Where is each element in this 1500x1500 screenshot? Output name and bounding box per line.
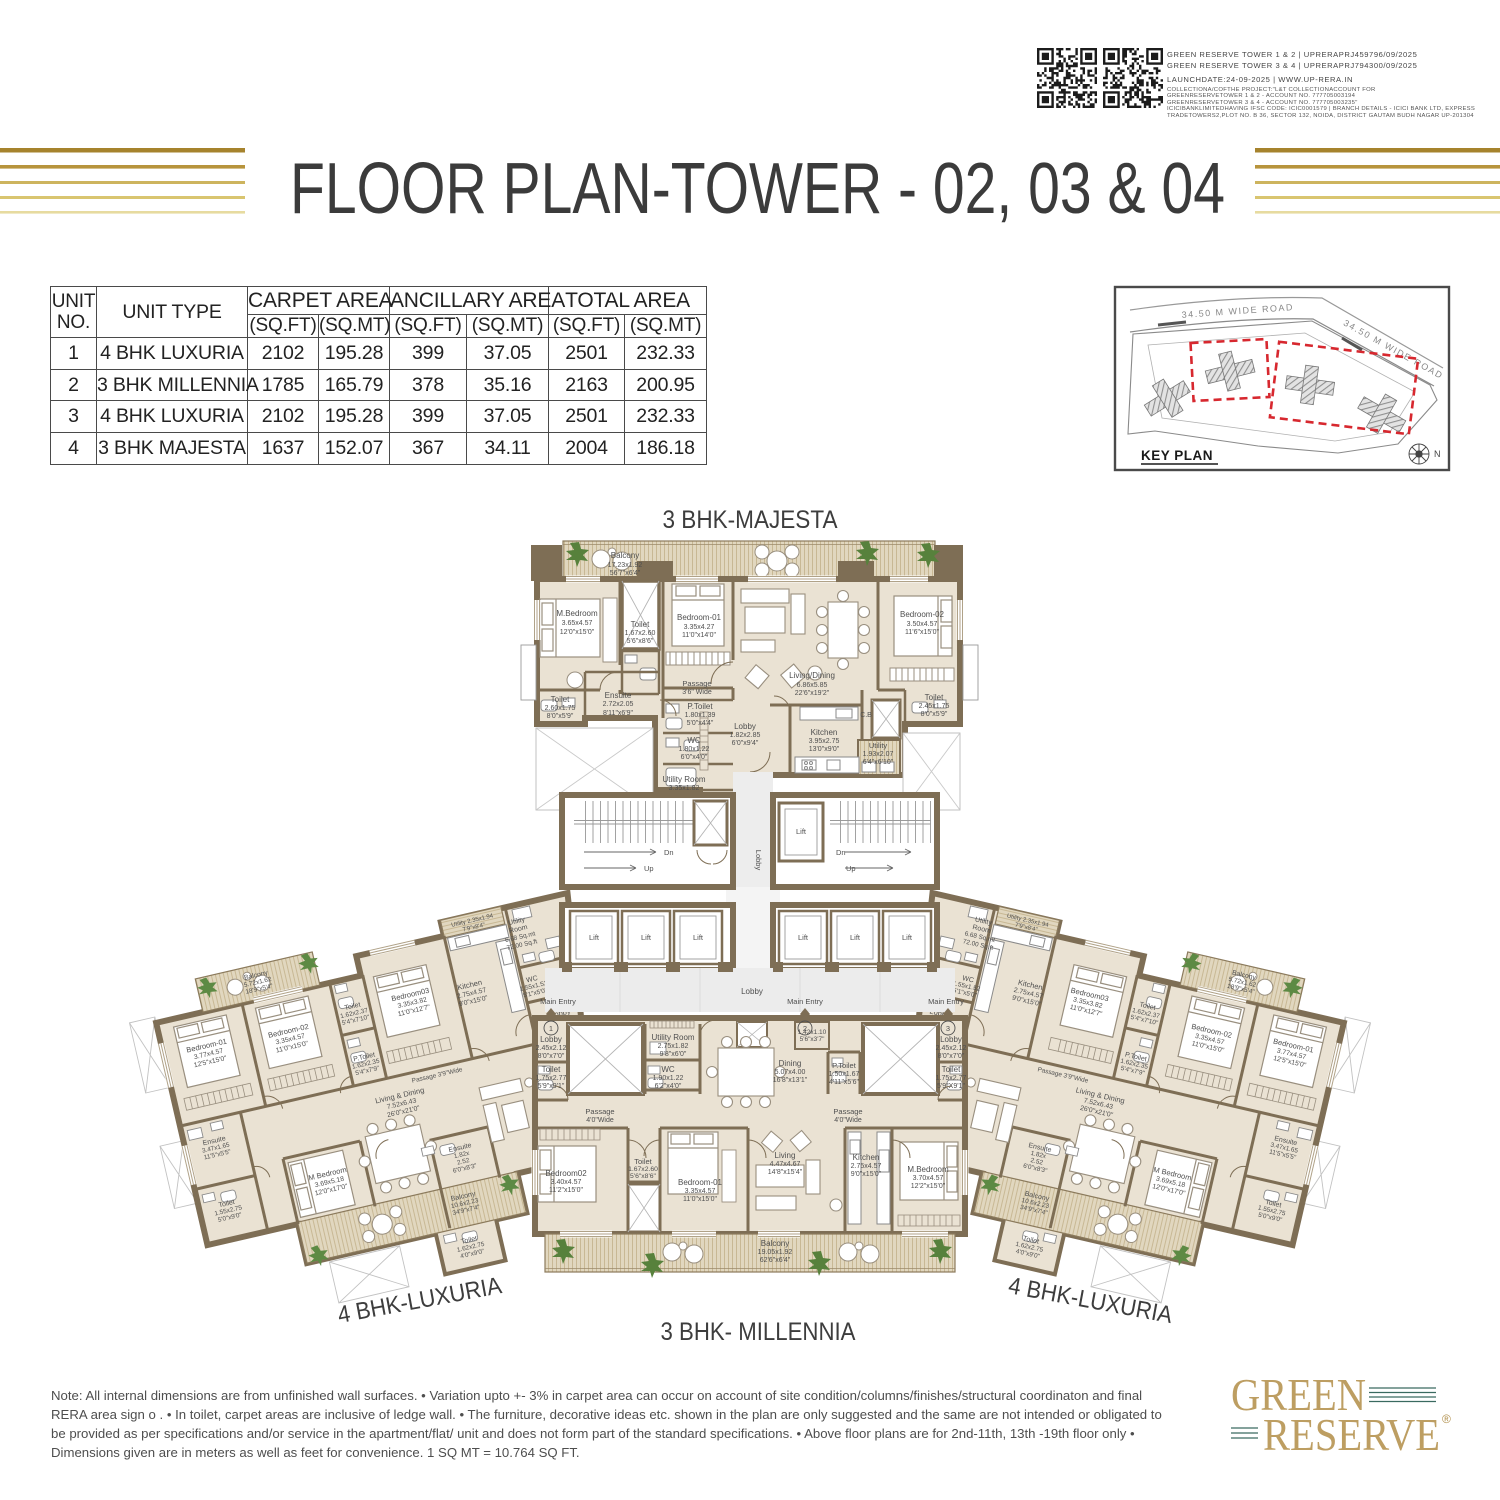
svg-text:12'2"x15'0": 12'2"x15'0": [911, 1183, 946, 1190]
svg-text:2.45x2.12: 2.45x2.12: [536, 1045, 567, 1052]
svg-text:Bedroom-01: Bedroom-01: [678, 1178, 723, 1187]
svg-text:Lift: Lift: [589, 933, 600, 942]
svg-text:5'6"x8'6": 5'6"x8'6": [627, 638, 654, 645]
svg-text:Lift: Lift: [641, 933, 652, 942]
svg-text:4'0"Wide: 4'0"Wide: [586, 1117, 614, 1124]
svg-text:8'0"x5'9": 8'0"x5'9": [921, 711, 948, 718]
svg-text:Balcony: Balcony: [611, 551, 639, 560]
svg-text:Toilet: Toilet: [631, 620, 650, 629]
svg-text:1.82x2.85: 1.82x2.85: [730, 732, 761, 739]
svg-text:Passage: Passage: [833, 1107, 862, 1116]
svg-text:2.45x1.75: 2.45x1.75: [919, 703, 950, 710]
svg-text:3.95x2.75: 3.95x2.75: [809, 738, 840, 745]
svg-text:4.47x4.67: 4.47x4.67: [770, 1161, 801, 1168]
svg-text:Lift: Lift: [902, 933, 913, 942]
svg-text:5'9"X9'1": 5'9"X9'1": [937, 1083, 965, 1090]
svg-text:Utility Room: Utility Room: [651, 1033, 694, 1042]
svg-text:1.67x2.60: 1.67x2.60: [628, 1166, 658, 1173]
svg-text:2: 2: [803, 1024, 807, 1033]
svg-text:Lift: Lift: [796, 827, 807, 836]
svg-text:3'6" Wide: 3'6" Wide: [682, 689, 712, 696]
svg-text:Lobby: Lobby: [940, 1035, 962, 1044]
svg-text:Lobby: Lobby: [734, 722, 756, 731]
svg-text:1: 1: [549, 1024, 553, 1033]
svg-text:Dn: Dn: [836, 848, 846, 857]
svg-text:Lift: Lift: [798, 933, 809, 942]
svg-text:®: ®: [1442, 1412, 1451, 1426]
svg-text:6'0"x9'4": 6'0"x9'4": [732, 740, 759, 747]
svg-text:8'0"x7'0": 8'0"x7'0": [538, 1053, 565, 1060]
svg-text:3.65x4.57: 3.65x4.57: [562, 620, 593, 627]
svg-text:1.80x1.22: 1.80x1.22: [679, 746, 710, 753]
svg-text:Lobby: Lobby: [741, 987, 763, 996]
svg-text:Toilet: Toilet: [634, 1157, 652, 1166]
svg-text:Bedroom02: Bedroom02: [545, 1169, 587, 1178]
svg-text:RESERVE: RESERVE: [1263, 1409, 1440, 1460]
svg-text:Main Entry: Main Entry: [928, 997, 964, 1006]
svg-text:Ensuite: Ensuite: [605, 691, 632, 700]
svg-text:3 BHK- MILLENNIA: 3 BHK- MILLENNIA: [661, 1318, 856, 1346]
svg-text:C.B: C.B: [860, 712, 872, 719]
svg-text:Bedroom-01: Bedroom-01: [677, 613, 722, 622]
svg-text:Dining: Dining: [779, 1059, 802, 1068]
svg-text:6'4"x6'10": 6'4"x6'10": [863, 759, 894, 766]
svg-text:Main Entry: Main Entry: [540, 997, 576, 1006]
svg-text:Passage: Passage: [682, 679, 711, 688]
svg-text:Lift: Lift: [693, 933, 704, 942]
svg-text:5'9"x9'1": 5'9"x9'1": [538, 1083, 565, 1090]
svg-text:P.Toilet: P.Toilet: [687, 702, 713, 711]
svg-text:3.70x4.57: 3.70x4.57: [913, 1175, 944, 1182]
svg-text:6.86x5.85: 6.86x5.85: [797, 682, 828, 689]
svg-text:Toilet: Toilet: [551, 695, 570, 704]
svg-text:8'0"x7'0": 8'0"x7'0": [938, 1053, 965, 1060]
svg-text:2.45x2.12: 2.45x2.12: [936, 1045, 967, 1052]
svg-text:62'6"x6'4": 62'6"x6'4": [760, 1257, 791, 1264]
svg-text:Up: Up: [644, 864, 654, 873]
svg-text:1.50x1.67: 1.50x1.67: [829, 1071, 860, 1078]
svg-text:Lift: Lift: [850, 933, 861, 942]
svg-text:Utility Room: Utility Room: [662, 775, 705, 784]
svg-text:Toilet: Toilet: [542, 1065, 561, 1074]
svg-text:2.72x2.05: 2.72x2.05: [603, 701, 634, 708]
svg-text:Toilet: Toilet: [942, 1065, 961, 1074]
svg-text:Living/Dining: Living/Dining: [789, 671, 835, 680]
svg-text:3 BHK-MAJESTA: 3 BHK-MAJESTA: [663, 506, 838, 534]
svg-text:KEY PLAN: KEY PLAN: [1141, 448, 1213, 463]
svg-text:8'11"x6'9": 8'11"x6'9": [603, 710, 634, 717]
svg-text:Toilet: Toilet: [925, 693, 944, 702]
svg-text:5'6"x3'7": 5'6"x3'7": [800, 1036, 825, 1043]
svg-text:14'8"x15'4": 14'8"x15'4": [768, 1169, 803, 1176]
svg-text:3.35x4.27: 3.35x4.27: [684, 624, 715, 631]
svg-text:WC: WC: [661, 1065, 675, 1074]
svg-text:11'0"x14'0": 11'0"x14'0": [682, 632, 716, 639]
svg-text:1.90x1.22: 1.90x1.22: [653, 1075, 684, 1082]
svg-text:1.75x2.77: 1.75x2.77: [536, 1075, 567, 1082]
svg-text:Kitchen: Kitchen: [811, 728, 838, 737]
svg-text:WC: WC: [687, 736, 701, 745]
svg-text:5'6"x8'6": 5'6"x8'6": [630, 1173, 657, 1180]
svg-text:Balcony: Balcony: [761, 1239, 789, 1248]
svg-text:N: N: [1434, 449, 1441, 459]
svg-text:3.50x4.57: 3.50x4.57: [907, 621, 938, 628]
svg-text:5'0"x4'4": 5'0"x4'4": [687, 720, 714, 727]
svg-text:9'0"x15'0": 9'0"x15'0": [851, 1171, 882, 1178]
svg-text:2.75x4.57: 2.75x4.57: [851, 1163, 882, 1170]
svg-text:1.93x2.07: 1.93x2.07: [863, 751, 894, 758]
svg-text:4'0"Wide: 4'0"Wide: [834, 1117, 862, 1124]
svg-text:1.80x1.39: 1.80x1.39: [685, 712, 716, 719]
svg-text:P.Toilet: P.Toilet: [832, 1061, 857, 1070]
svg-text:13'0"x9'0": 13'0"x9'0": [809, 746, 840, 753]
svg-text:M.Bedroom: M.Bedroom: [556, 609, 598, 618]
svg-text:Up: Up: [846, 864, 856, 873]
svg-text:Lobby: Lobby: [540, 1035, 562, 1044]
svg-text:3.40x4.57: 3.40x4.57: [551, 1179, 582, 1186]
svg-text:Passage: Passage: [585, 1107, 614, 1116]
svg-text:11'2"x15'0": 11'2"x15'0": [549, 1187, 583, 1194]
svg-text:2.60x1.75: 2.60x1.75: [545, 705, 576, 712]
svg-text:Kitchen: Kitchen: [853, 1153, 880, 1162]
svg-text:4'11"x5'6": 4'11"x5'6": [829, 1079, 860, 1086]
svg-text:8'0"x5'9": 8'0"x5'9": [547, 713, 574, 720]
svg-text:3: 3: [946, 1024, 950, 1033]
svg-text:1.67x2.60: 1.67x2.60: [625, 630, 656, 637]
svg-text:Living: Living: [775, 1151, 796, 1160]
svg-text:11'0"x15'0": 11'0"x15'0": [683, 1196, 717, 1203]
svg-text:56'7"x6'4": 56'7"x6'4": [610, 570, 641, 577]
svg-text:3.35x4.57: 3.35x4.57: [685, 1188, 716, 1195]
svg-text:19.05x1.92: 19.05x1.92: [758, 1249, 793, 1256]
svg-text:17.23x1.92: 17.23x1.92: [608, 562, 643, 569]
svg-text:Bedroom-02: Bedroom-02: [900, 610, 945, 619]
svg-text:Main Entry: Main Entry: [787, 997, 823, 1006]
svg-text:5.07x4.00: 5.07x4.00: [775, 1069, 806, 1076]
svg-text:22'6"x19'2": 22'6"x19'2": [795, 690, 830, 697]
svg-text:6'2"x4'0": 6'2"x4'0": [655, 1083, 682, 1090]
svg-text:1.75x2.77: 1.75x2.77: [936, 1075, 967, 1082]
svg-text:M.Bedroom: M.Bedroom: [907, 1165, 949, 1174]
svg-text:Utility: Utility: [869, 741, 888, 750]
svg-text:Dn: Dn: [664, 848, 674, 857]
svg-text:11'6"x15'0": 11'6"x15'0": [905, 629, 939, 636]
svg-text:Lobby: Lobby: [754, 850, 763, 871]
svg-text:9'8"x6'0": 9'8"x6'0": [660, 1051, 687, 1058]
svg-text:6'0"x4'0": 6'0"x4'0": [681, 754, 708, 761]
svg-text:16'8"x13'1": 16'8"x13'1": [773, 1077, 808, 1084]
svg-text:3.35x1.82: 3.35x1.82: [669, 785, 700, 792]
svg-text:12'0"x15'0": 12'0"x15'0": [560, 629, 595, 636]
svg-text:2.75x1.82: 2.75x1.82: [658, 1043, 689, 1050]
